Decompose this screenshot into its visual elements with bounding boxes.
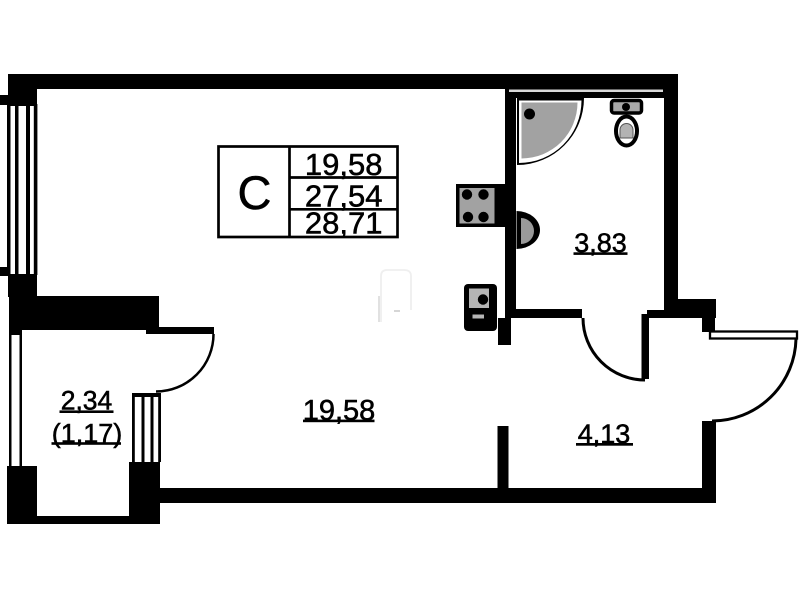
- svg-text:28,71: 28,71: [305, 206, 383, 241]
- svg-text:19,58: 19,58: [305, 147, 383, 182]
- svg-text:С: С: [238, 166, 272, 219]
